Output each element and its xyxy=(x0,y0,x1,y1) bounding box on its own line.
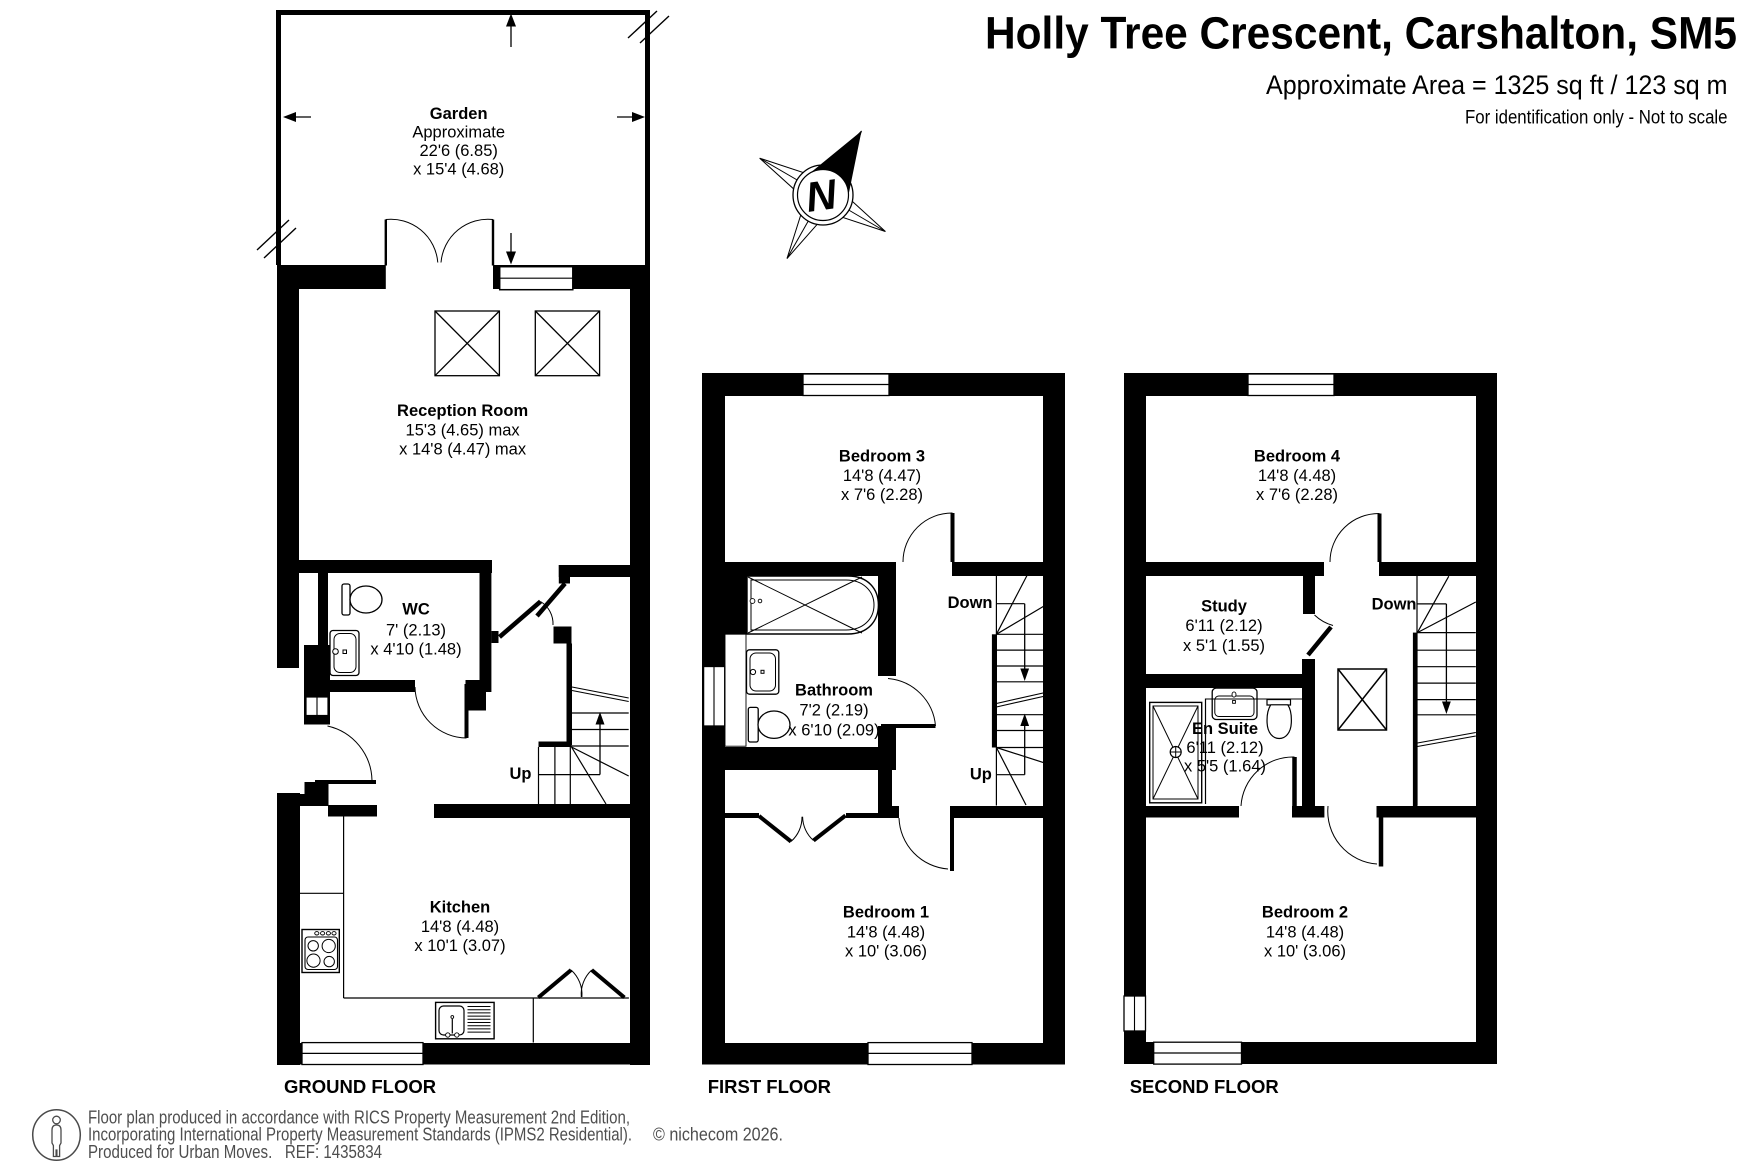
svg-text:6'11 (2.12): 6'11 (2.12) xyxy=(1185,617,1262,635)
svg-text:Bedroom 3: Bedroom 3 xyxy=(839,447,925,465)
svg-text:Bedroom 4: Bedroom 4 xyxy=(1254,447,1341,465)
svg-text:For identification only - Not: For identification only - Not to scale xyxy=(1465,107,1728,128)
svg-text:Garden: Garden xyxy=(430,105,488,123)
svg-text:6'11 (2.12): 6'11 (2.12) xyxy=(1186,739,1263,757)
svg-text:x 14'8 (4.47) max: x 14'8 (4.47) max xyxy=(399,441,527,459)
svg-text:x 5'5 (1.64): x 5'5 (1.64) xyxy=(1184,757,1266,775)
svg-text:x 15'4 (4.68): x 15'4 (4.68) xyxy=(413,161,504,179)
svg-text:Approximate: Approximate xyxy=(412,124,505,142)
svg-text:Holly Tree Crescent, Carshalto: Holly Tree Crescent, Carshalton, SM5 xyxy=(985,7,1737,58)
svg-text:WC: WC xyxy=(402,601,430,619)
svg-text:Reception Room: Reception Room xyxy=(397,402,528,420)
svg-text:SECOND FLOOR: SECOND FLOOR xyxy=(1130,1076,1279,1097)
svg-text:x 10'1 (3.07): x 10'1 (3.07) xyxy=(414,937,505,955)
svg-text:x 10' (3.06): x 10' (3.06) xyxy=(1264,943,1346,961)
svg-text:Bedroom 1: Bedroom 1 xyxy=(843,904,929,922)
svg-text:Up: Up xyxy=(970,766,992,784)
svg-text:© nichecom 2026.: © nichecom 2026. xyxy=(653,1124,783,1144)
svg-text:x 4'10 (1.48): x 4'10 (1.48) xyxy=(370,641,461,659)
svg-text:x 10' (3.06): x 10' (3.06) xyxy=(845,943,927,961)
svg-text:En Suite: En Suite xyxy=(1192,720,1258,738)
svg-text:7'2 (2.19): 7'2 (2.19) xyxy=(799,702,868,720)
svg-text:Up: Up xyxy=(510,765,532,783)
svg-text:x 7'6 (2.28): x 7'6 (2.28) xyxy=(841,486,923,504)
svg-text:x 7'6 (2.28): x 7'6 (2.28) xyxy=(1256,486,1338,504)
svg-text:Study: Study xyxy=(1201,597,1248,615)
svg-text:Produced for Urban Moves. RE: Produced for Urban Moves. REF: 1435834 xyxy=(88,1142,382,1162)
svg-text:Down: Down xyxy=(948,594,993,612)
svg-text:22'6 (6.85): 22'6 (6.85) xyxy=(420,142,498,160)
svg-text:Bathroom: Bathroom xyxy=(795,682,873,700)
svg-text:7' (2.13): 7' (2.13) xyxy=(386,622,446,640)
svg-text:Bedroom 2: Bedroom 2 xyxy=(1262,904,1348,922)
svg-text:x 6'10 (2.09): x 6'10 (2.09) xyxy=(788,721,879,739)
svg-text:14'8 (4.48): 14'8 (4.48) xyxy=(1258,467,1336,485)
svg-text:Approximate Area = 1325 sq ft: Approximate Area = 1325 sq ft / 123 sq m xyxy=(1266,70,1728,100)
svg-text:15'3 (4.65) max: 15'3 (4.65) max xyxy=(406,422,521,440)
svg-text:Down: Down xyxy=(1372,596,1417,614)
svg-text:GROUND FLOOR: GROUND FLOOR xyxy=(284,1076,436,1097)
svg-text:14'8 (4.47): 14'8 (4.47) xyxy=(843,467,921,485)
svg-text:14'8 (4.48): 14'8 (4.48) xyxy=(847,923,925,941)
svg-text:FIRST FLOOR: FIRST FLOOR xyxy=(708,1076,831,1097)
svg-text:14'8 (4.48): 14'8 (4.48) xyxy=(421,918,499,936)
svg-text:14'8 (4.48): 14'8 (4.48) xyxy=(1266,923,1344,941)
svg-text:Kitchen: Kitchen xyxy=(430,898,491,916)
svg-text:x 5'1 (1.55): x 5'1 (1.55) xyxy=(1183,637,1265,655)
